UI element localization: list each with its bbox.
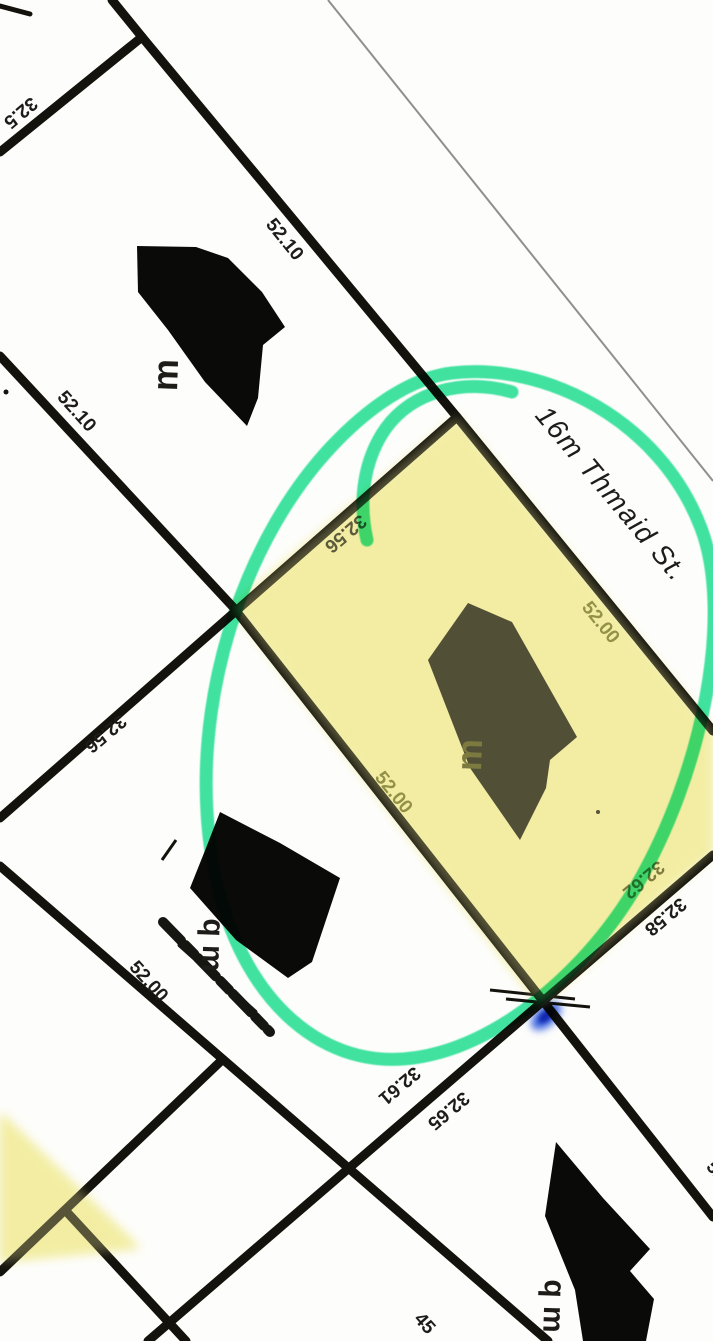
scan-speck	[4, 390, 9, 395]
unit-mark-label: q m	[536, 1279, 571, 1333]
plat-map-svg: 32.552.1052.1032.5632.5652.0052.0032.623…	[0, 0, 713, 1341]
scanned-plat-document: 32.552.1052.1032.5632.5652.0052.0032.623…	[0, 0, 713, 1341]
unit-mark-label: m	[144, 358, 186, 391]
